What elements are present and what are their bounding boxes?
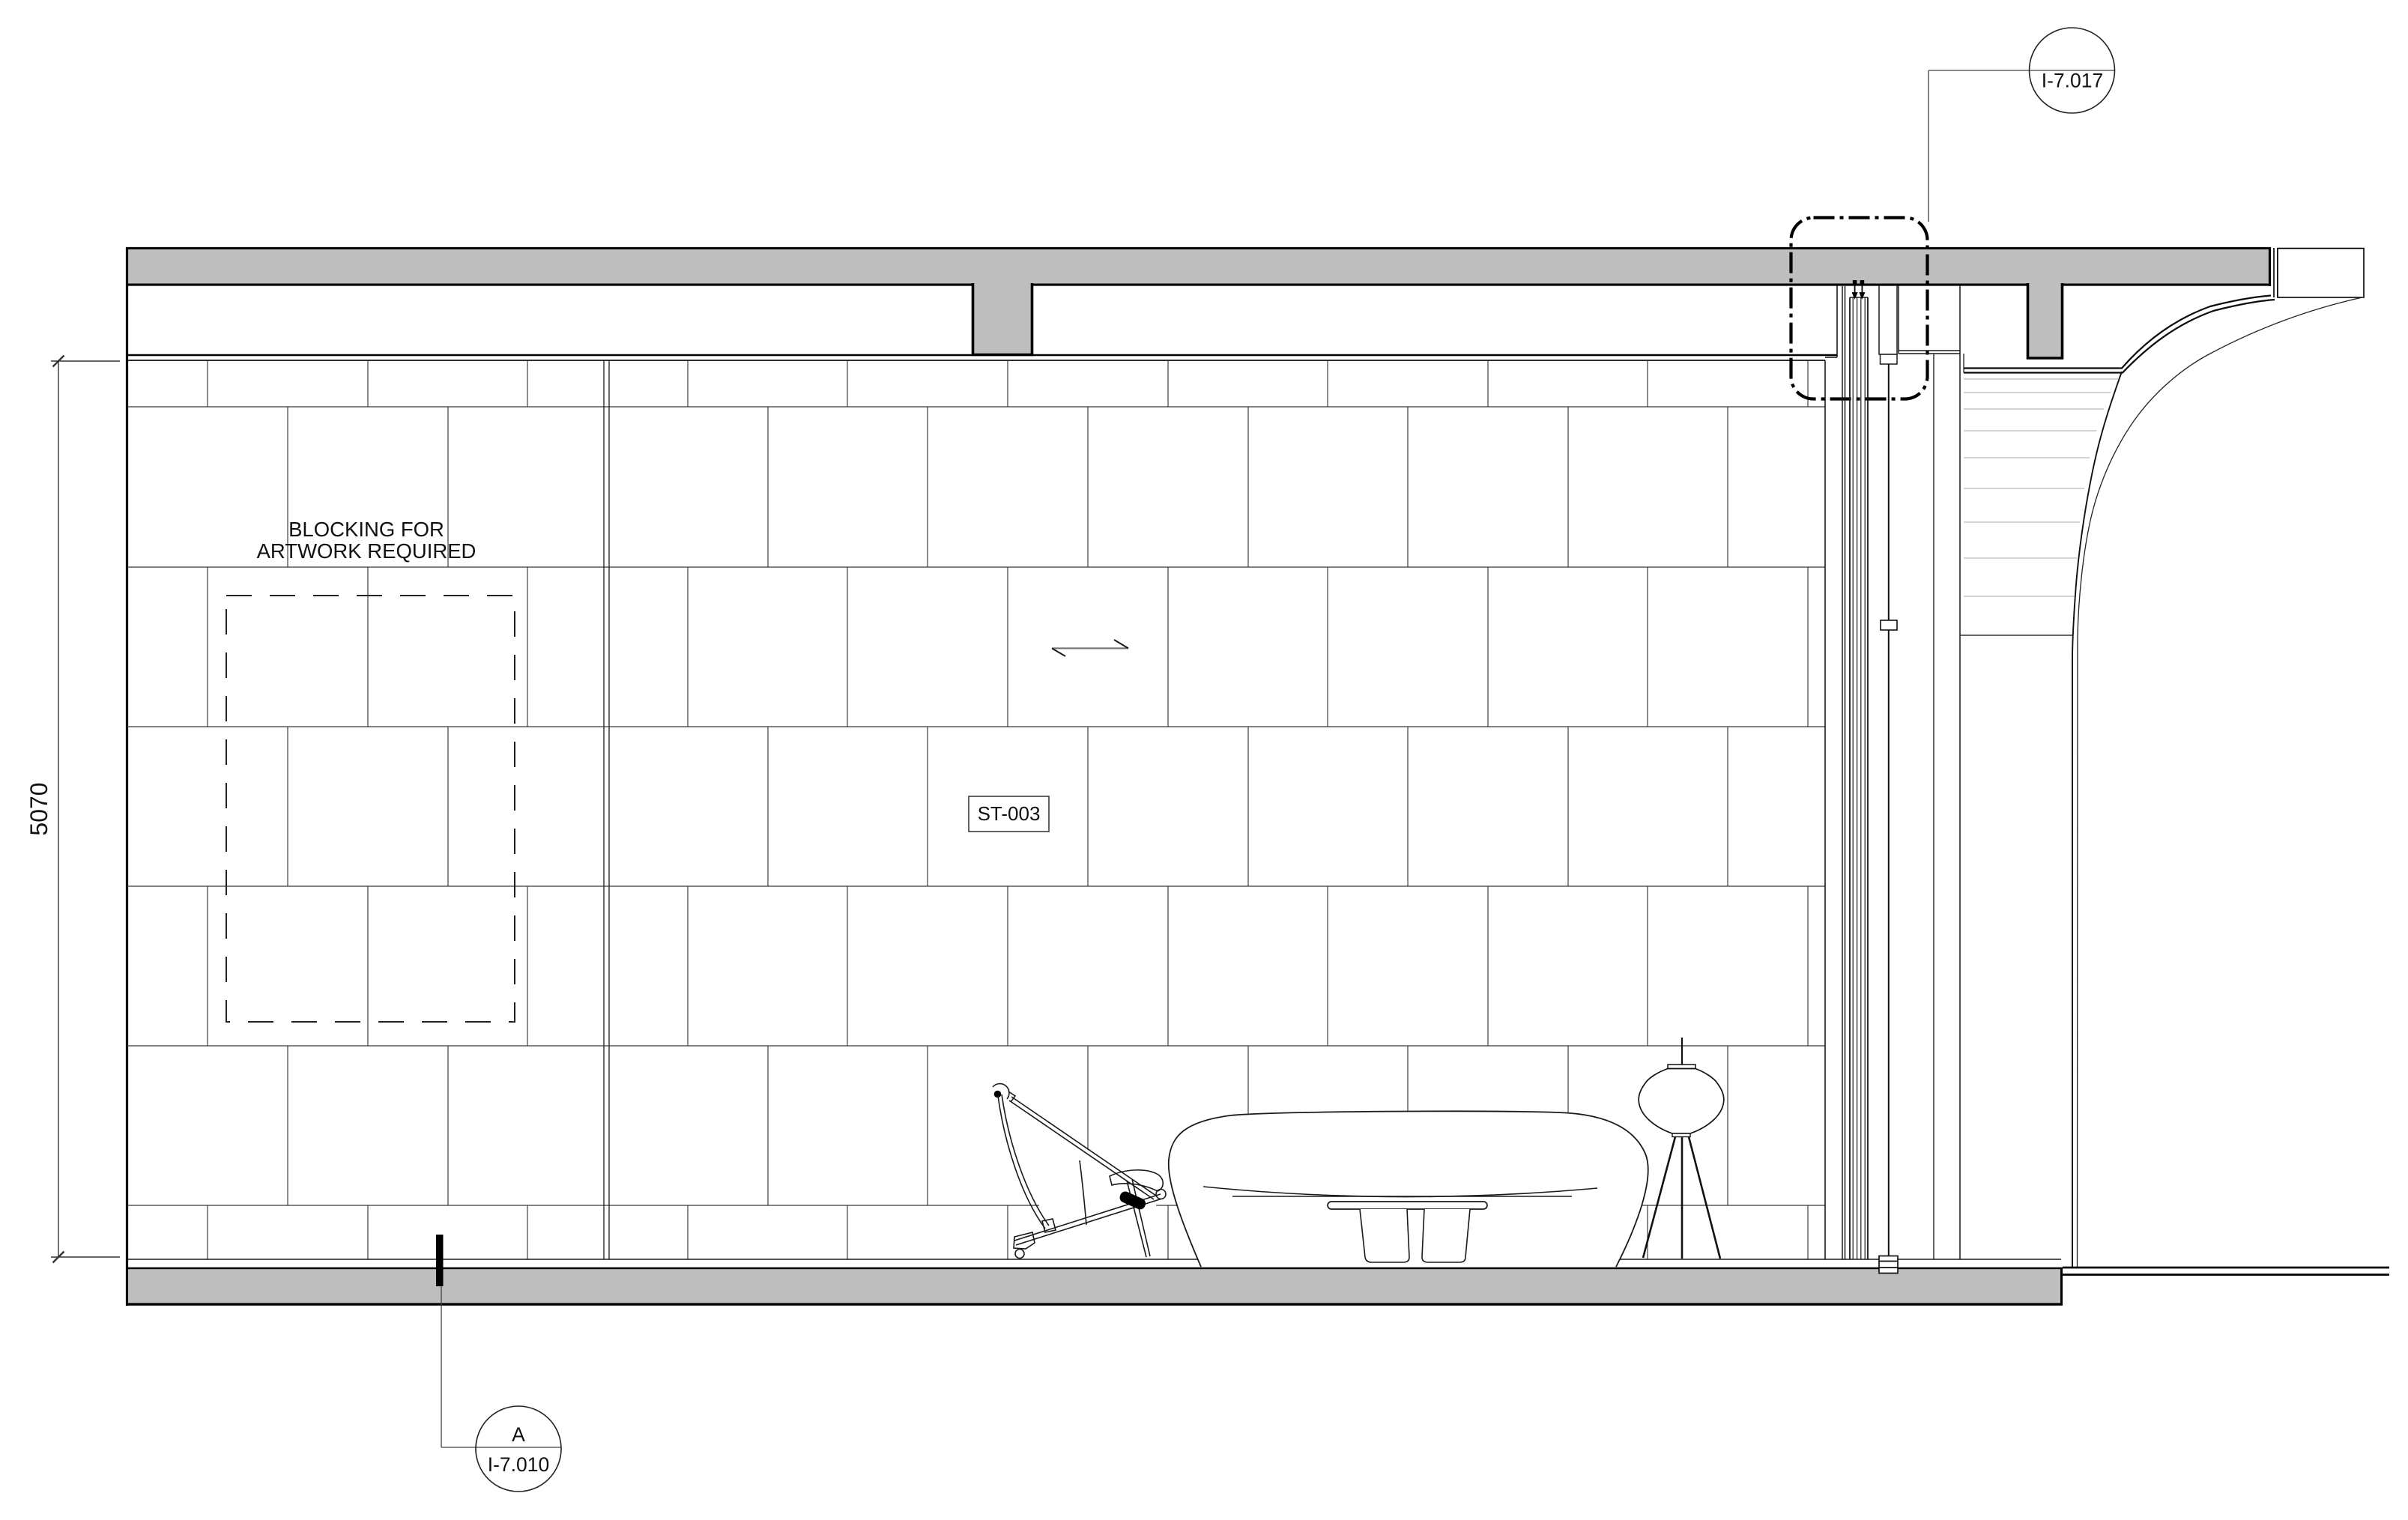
svg-text:I-7.017: I-7.017 — [2042, 70, 2104, 92]
svg-text:ST-003: ST-003 — [978, 802, 1041, 825]
svg-text:BLOCKING FOR: BLOCKING FOR — [288, 518, 444, 541]
svg-text:ARTWORK REQUIRED: ARTWORK REQUIRED — [257, 539, 477, 563]
svg-text:5070: 5070 — [25, 782, 52, 835]
svg-text:A: A — [512, 1423, 525, 1446]
svg-text:I-7.010: I-7.010 — [488, 1453, 550, 1476]
